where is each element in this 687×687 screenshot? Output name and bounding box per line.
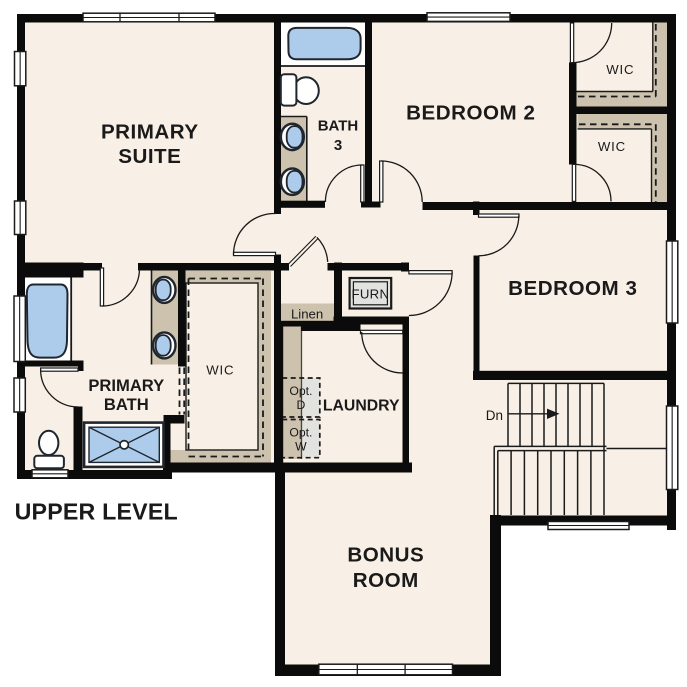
svg-text:Opt.: Opt. [289, 425, 312, 439]
svg-text:ROOM: ROOM [353, 569, 419, 592]
svg-text:D: D [296, 398, 305, 412]
svg-text:PRIMARY: PRIMARY [88, 376, 164, 395]
svg-text:3: 3 [334, 137, 342, 154]
svg-text:WIC: WIC [206, 362, 234, 377]
svg-text:LAUNDRY: LAUNDRY [323, 397, 400, 414]
svg-text:PRIMARY: PRIMARY [101, 120, 199, 143]
svg-text:W: W [295, 440, 307, 454]
svg-text:Linen: Linen [291, 306, 323, 321]
svg-text:BATH: BATH [104, 395, 149, 414]
svg-text:WIC: WIC [598, 139, 626, 154]
svg-text:FURN: FURN [351, 287, 389, 302]
svg-text:UPPER LEVEL: UPPER LEVEL [15, 499, 178, 525]
svg-text:WIC: WIC [606, 62, 634, 77]
svg-text:BONUS: BONUS [347, 544, 424, 567]
svg-text:Opt.: Opt. [289, 384, 312, 398]
svg-text:Dn: Dn [486, 408, 503, 423]
svg-text:BATH: BATH [318, 118, 359, 135]
svg-text:BEDROOM 3: BEDROOM 3 [508, 277, 637, 300]
svg-text:BEDROOM 2: BEDROOM 2 [406, 101, 535, 124]
svg-text:SUITE: SUITE [118, 145, 181, 168]
